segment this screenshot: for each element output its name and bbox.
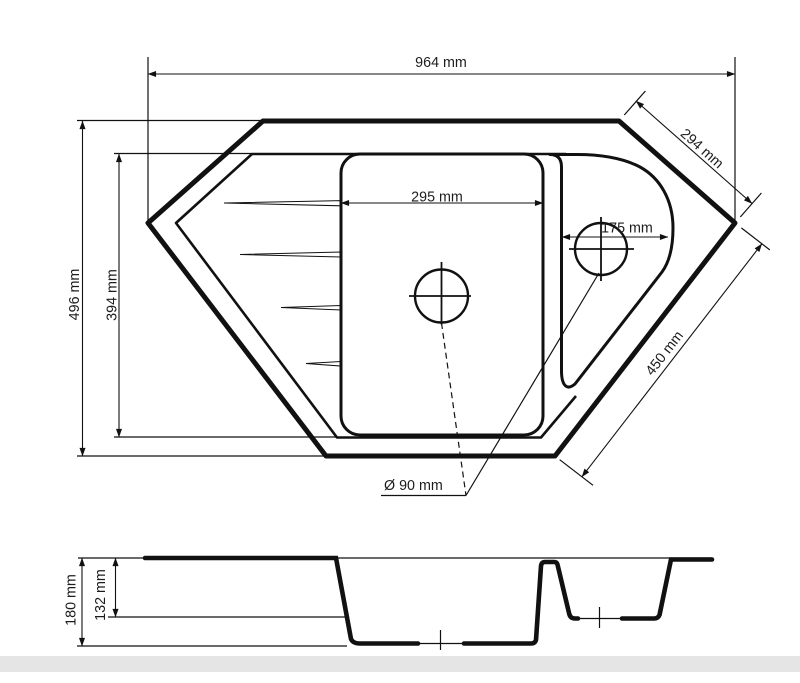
svg-text:180 mm: 180 mm [64, 574, 80, 626]
svg-text:295 mm: 295 mm [411, 190, 463, 206]
svg-text:964 mm: 964 mm [415, 55, 467, 71]
svg-text:496 mm: 496 mm [67, 269, 83, 321]
svg-text:394 mm: 394 mm [105, 269, 121, 321]
svg-text:175 mm: 175 mm [601, 221, 653, 237]
svg-text:Ø 90 mm: Ø 90 mm [384, 478, 443, 494]
svg-text:132 mm: 132 mm [93, 569, 109, 621]
